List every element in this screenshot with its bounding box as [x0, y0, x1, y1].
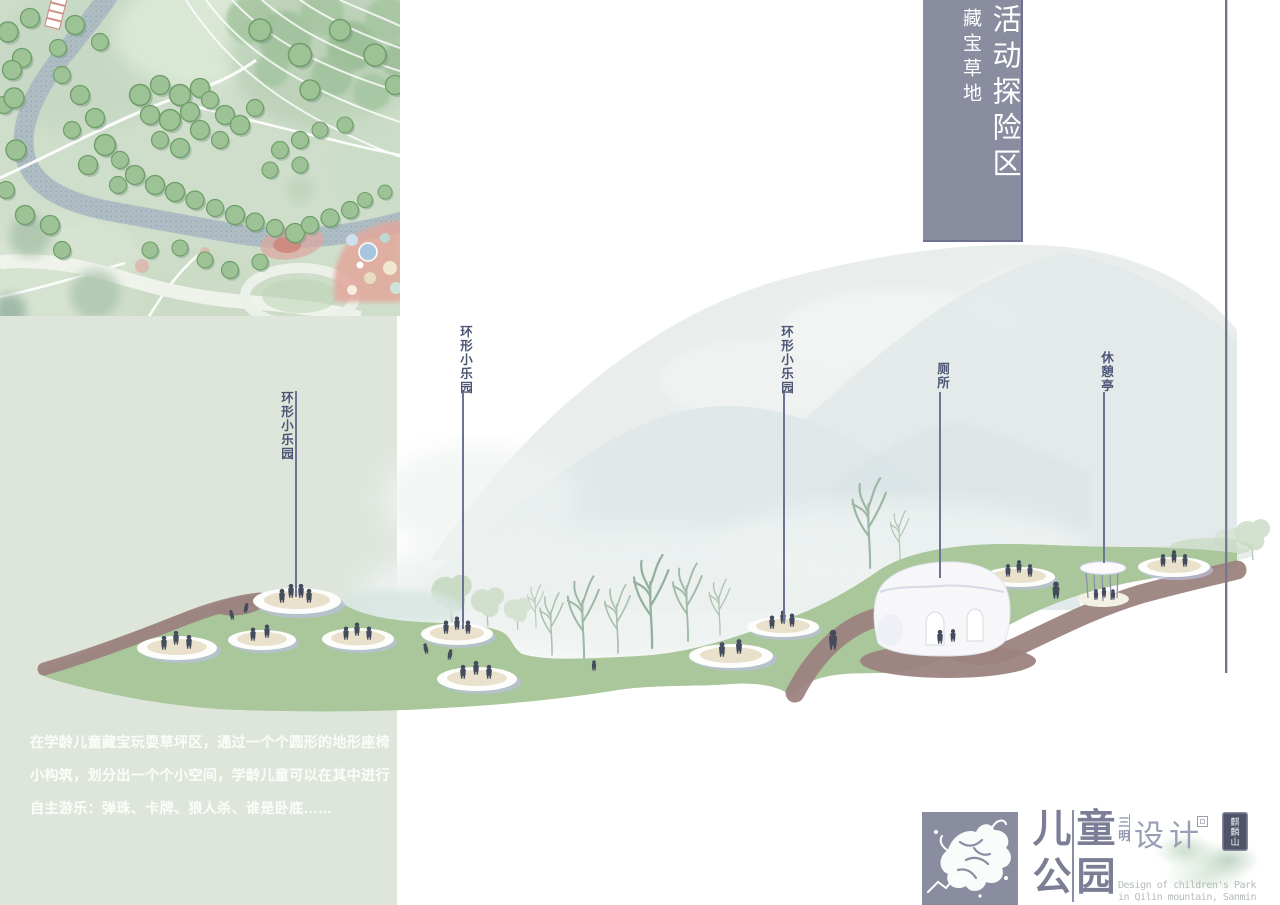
- green-band: [1170, 538, 1254, 556]
- ring-lawn: [262, 279, 338, 313]
- design-text: 设计: [1134, 811, 1204, 855]
- label-ring-playground-3: 环形小乐园: [777, 325, 796, 395]
- title-char-4: 园: [1075, 855, 1117, 901]
- seal-icon: 麒麟山: [1222, 812, 1248, 851]
- left-panel: 在学龄儿童藏宝玩耍草坪区，通过一个个圆形的地形座椅小构筑，划分出一个个小空间，学…: [0, 316, 397, 905]
- vertical-rule: [1225, 0, 1227, 673]
- bare-trees: [528, 478, 909, 660]
- toilet-dome: [874, 562, 1010, 656]
- label-rest-pavilion: 休憩亭: [1097, 351, 1116, 393]
- label-ring-playground-1: 环形小乐园: [277, 391, 296, 461]
- label-text: 环形小乐园: [456, 325, 475, 395]
- banner-subtitle: 藏宝草地: [957, 8, 984, 108]
- title-divider: [1072, 810, 1074, 902]
- english-caption-line1: Design of children's Park: [1118, 880, 1256, 891]
- title-char-1: 儿: [1031, 807, 1073, 853]
- label-ring-playground-2: 环形小乐园: [456, 325, 475, 395]
- rest-pavilion: [1077, 562, 1129, 608]
- foliage-trees: [431, 519, 1270, 630]
- qilin-icon: [922, 812, 1018, 905]
- leader-line: [939, 392, 941, 578]
- leader-line: [295, 391, 297, 597]
- leader-line: [783, 393, 785, 623]
- label-toilet: 厕所: [933, 362, 952, 390]
- leader-line: [462, 393, 464, 629]
- description-text: 在学龄儿童藏宝玩耍草坪区，通过一个个圆形的地形座椅小构筑，划分出一个个小空间，学…: [30, 726, 402, 825]
- section-banner: 活动探险区 藏宝草地: [923, 0, 1023, 242]
- leader-line: [1103, 392, 1105, 563]
- logo-mark: [922, 812, 1018, 905]
- banner-title: 活动探险区: [983, 4, 1025, 184]
- title-char-3: 公: [1031, 855, 1073, 901]
- english-caption-line2: in Qilin mountain, Sanmin: [1118, 892, 1256, 903]
- seal-text: 麒麟山: [1229, 817, 1242, 847]
- stamp-icon: [1197, 816, 1208, 827]
- label-text: 休憩亭: [1097, 351, 1116, 393]
- region-divider: [1129, 814, 1130, 842]
- label-text: 环形小乐园: [277, 391, 296, 461]
- presentation-board: 在学龄儿童藏宝玩耍草坪区，通过一个个圆形的地形座椅小构筑，划分出一个个小空间，学…: [0, 0, 1280, 905]
- label-text: 厕所: [933, 362, 952, 390]
- title-char-2: 童: [1075, 807, 1117, 853]
- mountains: [360, 245, 1237, 665]
- water-band: [1137, 545, 1253, 563]
- label-text: 环形小乐园: [777, 325, 796, 395]
- park-plan-map: [0, 0, 400, 316]
